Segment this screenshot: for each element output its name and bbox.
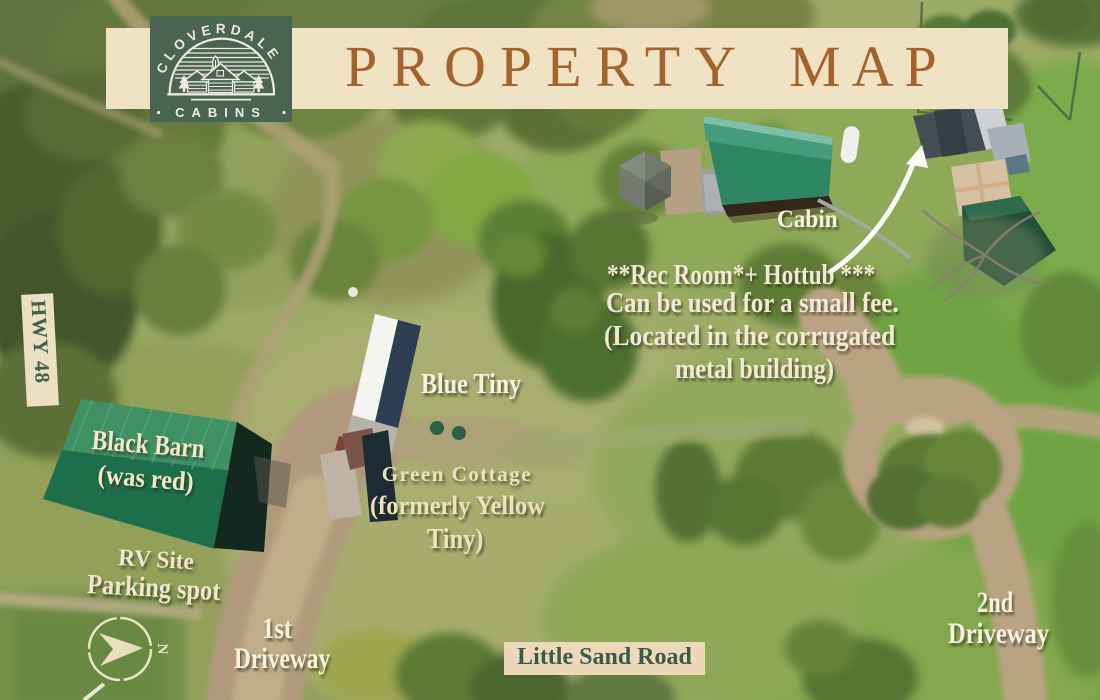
svg-text:CABINS: CABINS: [175, 105, 267, 120]
svg-text:N: N: [154, 644, 170, 655]
